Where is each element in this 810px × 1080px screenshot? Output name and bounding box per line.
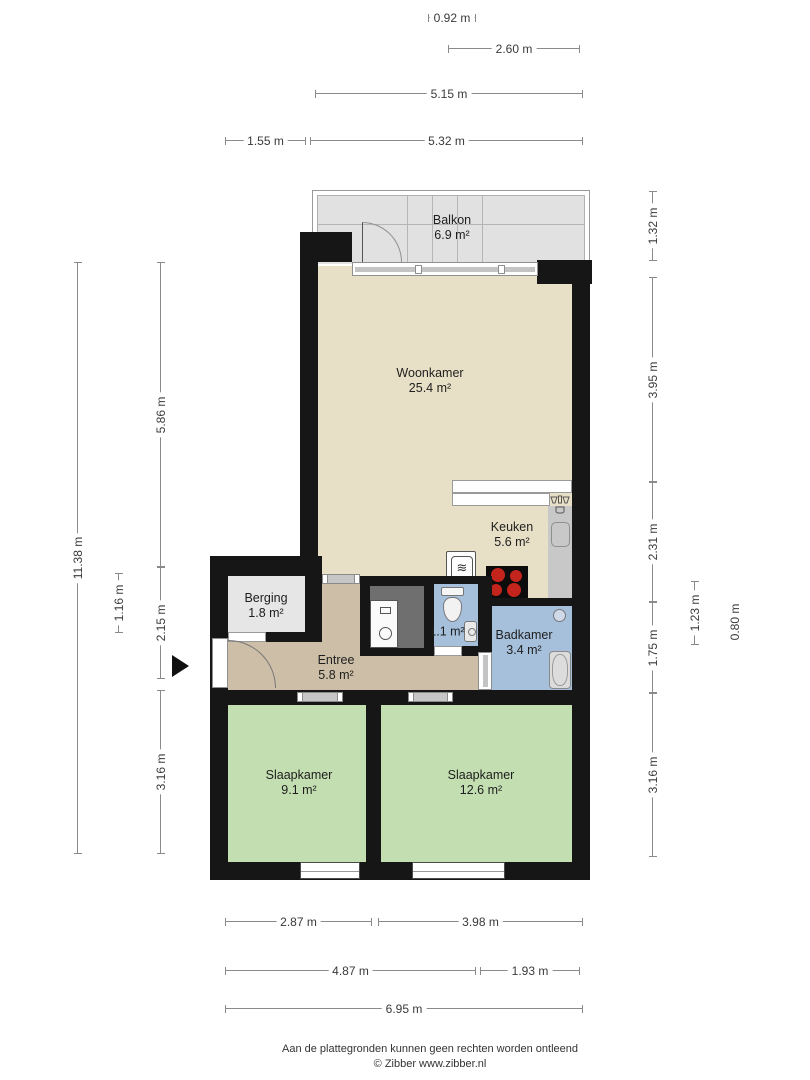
doorway-slaapkamer-rechts — [408, 692, 453, 702]
doorway-toilet — [434, 646, 462, 656]
room-label-slaapkamer-links: Slaapkamer 9.1 m² — [266, 768, 333, 798]
wall-segment — [210, 862, 590, 880]
dimension-line: 5.32 m — [310, 140, 583, 141]
room-area: 12.6 m² — [460, 783, 502, 797]
window-slaapkamer-links — [300, 862, 360, 879]
dimension-label: 3.16 m — [646, 753, 660, 798]
floorplan-canvas: ≋ — [0, 0, 810, 1080]
wall-segment — [300, 232, 352, 262]
door-jamb — [415, 265, 422, 274]
room-label-balkon: Balkon 6.9 m² — [433, 213, 471, 243]
room-label-woonkamer: Woonkamer 25.4 m² — [396, 366, 463, 396]
dimension-line: 2.31 m — [652, 482, 653, 602]
room-area: 1.1 m² — [429, 625, 464, 639]
footer: Aan de plattegronden kunnen geen rechten… — [282, 1042, 578, 1072]
dimension-label: 3.98 m — [458, 915, 503, 929]
dimension-label: 2.31 m — [646, 520, 660, 565]
footer-credit: © Zibber www.zibber.nl — [374, 1058, 487, 1070]
room-name: Badkamer — [496, 628, 553, 642]
dimension-label: 1.55 m — [243, 134, 288, 148]
room-name: Entree — [318, 653, 355, 667]
dimension-line: 11.38 m — [77, 262, 78, 854]
room-label-entree: Entree 5.8 m² — [318, 653, 355, 683]
dimension-line: 1.75 m — [652, 602, 653, 693]
dimension-line: 3.98 m — [378, 921, 583, 922]
room-area: 6.9 m² — [434, 228, 469, 242]
wall-segment — [492, 598, 572, 606]
dimension-label: 11.38 m — [71, 533, 85, 583]
wall-segment — [305, 556, 322, 642]
kitchen-counter-side — [548, 506, 572, 598]
room-name: Berging — [244, 591, 287, 605]
toilet-icon — [441, 587, 464, 596]
kitchen-counter — [452, 493, 550, 506]
kitchen-sink-icon — [548, 493, 572, 515]
wall-segment — [300, 262, 318, 576]
kitchen-counter — [452, 480, 572, 493]
counter-basin-icon — [551, 522, 570, 547]
dimension-line: 5.86 m — [160, 262, 161, 567]
footer-disclaimer: Aan de plattegronden kunnen geen rechten… — [282, 1043, 578, 1055]
cooktop-icon — [486, 566, 528, 598]
room-entree-floor-upper — [322, 584, 360, 642]
wall-segment — [366, 690, 381, 862]
room-area: 25.4 m² — [409, 381, 451, 395]
dimension-line: 4.87 m — [225, 970, 476, 971]
dimension-line: 1.32 m — [652, 191, 653, 261]
room-name: Keuken — [491, 520, 533, 534]
burner-icon — [491, 568, 505, 582]
room-label-badkamer: Badkamer 3.4 m² — [496, 628, 553, 658]
burner-icon — [507, 583, 521, 597]
room-area: 5.6 m² — [494, 535, 529, 549]
bathroom-sink-icon — [553, 609, 566, 622]
dimension-line: 0.92 m — [428, 17, 476, 18]
room-name: Slaapkamer — [266, 768, 333, 782]
room-label-keuken: Keuken 5.6 m² — [491, 520, 533, 550]
dimension-label: 0.80 m — [728, 604, 742, 641]
dimension-label: 5.15 m — [427, 87, 472, 101]
dimension-line: 2.60 m — [448, 48, 580, 49]
dimension-label: 5.32 m — [424, 134, 469, 148]
dimension-label: 2.15 m — [154, 601, 168, 646]
dimension-label: 5.86 m — [154, 392, 168, 437]
wall-segment — [478, 576, 492, 652]
room-name: Slaapkamer — [448, 768, 515, 782]
room-label-toilet: 1.1 m² — [429, 625, 464, 640]
dimension-label: 2.60 m — [492, 42, 537, 56]
dimension-label: 1.23 m — [688, 591, 702, 636]
burner-icon — [510, 570, 522, 582]
dimension-label: 1.93 m — [508, 964, 553, 978]
dimension-label: 4.87 m — [328, 964, 373, 978]
dimension-line: 1.93 m — [480, 970, 580, 971]
room-label-berging: Berging 1.8 m² — [244, 591, 287, 621]
room-label-slaapkamer-rechts: Slaapkamer 12.6 m² — [448, 768, 515, 798]
dimension-line: 2.15 m — [160, 567, 161, 679]
room-name: Balkon — [433, 213, 471, 227]
dimension-label: 6.95 m — [382, 1002, 427, 1016]
dimension-line: 2.87 m — [225, 921, 372, 922]
dimension-line: 3.95 m — [652, 277, 653, 482]
dimension-label: 3.95 m — [646, 357, 660, 402]
front-door — [212, 638, 228, 688]
washbasin-icon — [464, 621, 477, 642]
entrance-arrow-icon — [172, 655, 189, 677]
balcony-tile-line — [407, 196, 408, 262]
room-area: 9.1 m² — [281, 783, 316, 797]
sliding-door — [352, 262, 538, 276]
dimension-line: 5.15 m — [315, 93, 583, 94]
doorway-woonkamer-entree — [322, 574, 360, 584]
dimension-label: 2.87 m — [276, 915, 321, 929]
dimension-label: 1.32 m — [646, 204, 660, 249]
dimension-line: 1.16 m — [118, 573, 119, 633]
wall-segment — [210, 690, 590, 705]
dimension-line: 3.16 m — [160, 690, 161, 854]
window-slaapkamer-rechts — [412, 862, 505, 879]
doorway-badkamer — [478, 652, 492, 690]
dimension-label: 0.92 m — [430, 11, 475, 25]
dimension-label: 1.75 m — [646, 625, 660, 670]
wall-segment — [210, 556, 228, 880]
room-woonkamer-floor — [318, 266, 572, 576]
balcony-tile-line — [482, 196, 483, 262]
doorway-slaapkamer-links — [297, 692, 343, 702]
dimension-line: 1.55 m — [225, 140, 306, 141]
dimension-label: 3.16 m — [154, 750, 168, 795]
dimension-line: 3.16 m — [652, 693, 653, 857]
wall-segment — [572, 260, 590, 880]
room-area: 1.8 m² — [248, 606, 283, 620]
door-jamb — [498, 265, 505, 274]
dimension-line: 1.23 m — [694, 581, 695, 645]
room-name: Woonkamer — [396, 366, 463, 380]
room-area: 3.4 m² — [506, 643, 541, 657]
dimension-line: 6.95 m — [225, 1008, 583, 1009]
room-area: 5.8 m² — [318, 668, 353, 682]
dimension-label: 1.16 m — [112, 581, 126, 626]
closet-fixture-icon — [370, 600, 398, 648]
